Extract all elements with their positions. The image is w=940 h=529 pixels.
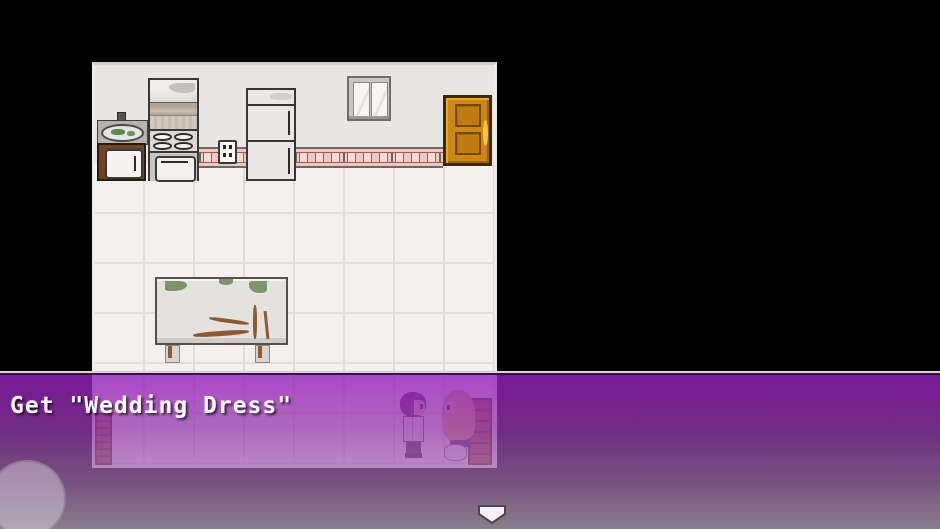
sink-counter bbox=[97, 120, 148, 145]
burner-icon bbox=[174, 133, 193, 141]
sink-basin bbox=[101, 124, 144, 142]
window-pane bbox=[371, 82, 388, 117]
burner-icon bbox=[153, 142, 172, 150]
door[interactable] bbox=[443, 95, 492, 166]
table-leg bbox=[255, 345, 270, 363]
fridge-divider bbox=[248, 140, 294, 142]
window bbox=[347, 76, 391, 121]
continue-arrow-icon[interactable] bbox=[477, 504, 507, 526]
moss-patch bbox=[165, 281, 187, 291]
kitchen-table bbox=[155, 277, 288, 345]
power-outlet bbox=[218, 140, 237, 164]
cabinet-door bbox=[105, 149, 143, 179]
message-box[interactable]: Get "Wedding Dress" bbox=[0, 371, 940, 529]
fridge-divider bbox=[248, 104, 294, 106]
stain bbox=[270, 93, 292, 100]
cabinet-handle bbox=[134, 156, 136, 171]
fridge-handle bbox=[288, 148, 290, 174]
range-hood bbox=[150, 80, 197, 102]
table-damage bbox=[253, 305, 257, 339]
fridge-handle bbox=[288, 111, 290, 135]
hood-vent bbox=[150, 102, 197, 116]
door-panel bbox=[455, 104, 481, 127]
table-damage bbox=[193, 329, 249, 338]
door-highlight bbox=[483, 120, 488, 146]
table-leg bbox=[165, 345, 180, 363]
refrigerator bbox=[246, 88, 296, 181]
sink-lower-cabinet bbox=[97, 143, 146, 181]
vegetables bbox=[111, 129, 125, 135]
game-screen: Get "Wedding Dress" bbox=[0, 0, 940, 529]
moss-patch bbox=[219, 279, 233, 285]
stain bbox=[169, 83, 195, 93]
burner-icon bbox=[174, 142, 193, 150]
vegetables bbox=[127, 131, 135, 136]
oven bbox=[150, 151, 197, 181]
stove-oven bbox=[148, 78, 199, 181]
moss-patch bbox=[249, 281, 267, 293]
stove-burners bbox=[150, 129, 197, 153]
hood-vent bbox=[150, 115, 197, 130]
window-sill bbox=[349, 116, 389, 119]
oven-door bbox=[155, 156, 196, 182]
message-text: Get "Wedding Dress" bbox=[10, 393, 292, 419]
oven-handle bbox=[161, 161, 188, 163]
burner-icon bbox=[153, 133, 172, 141]
window-pane bbox=[353, 82, 370, 117]
table-damage bbox=[209, 316, 249, 326]
door-panel bbox=[455, 132, 481, 155]
table-damage bbox=[264, 311, 270, 339]
sink-cabinet bbox=[97, 112, 148, 181]
